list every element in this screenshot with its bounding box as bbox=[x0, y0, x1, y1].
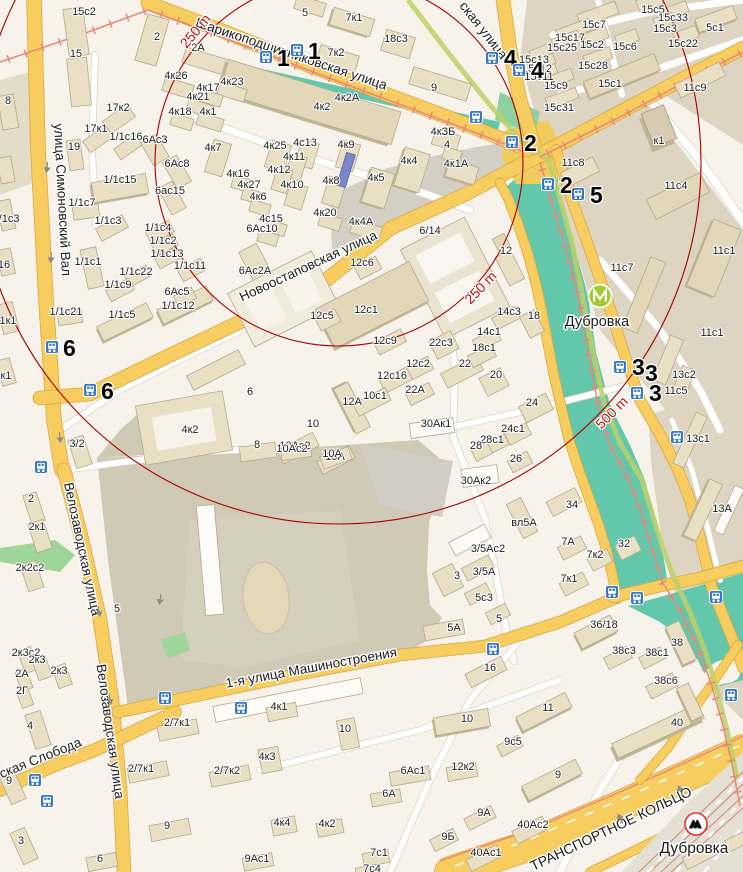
svg-text:12с6: 12с6 bbox=[350, 257, 374, 269]
svg-text:40Ас1: 40Ас1 bbox=[470, 847, 501, 859]
svg-text:36/18: 36/18 bbox=[590, 619, 618, 631]
svg-text:4к8: 4к8 bbox=[322, 175, 339, 187]
svg-text:4: 4 bbox=[531, 57, 544, 83]
svg-text:34: 34 bbox=[566, 499, 578, 511]
svg-text:38: 38 bbox=[671, 637, 683, 649]
svg-text:11с5: 11с5 bbox=[664, 385, 687, 397]
svg-text:12с9: 12с9 bbox=[373, 335, 397, 347]
svg-text:6: 6 bbox=[97, 853, 103, 865]
svg-text:17к1: 17к1 bbox=[84, 123, 107, 135]
svg-text:9Ас1: 9Ас1 bbox=[244, 853, 269, 865]
svg-text:10: 10 bbox=[339, 723, 351, 735]
svg-text:6А: 6А bbox=[382, 788, 396, 800]
svg-text:15с2: 15с2 bbox=[72, 6, 96, 18]
svg-text:1/1с22: 1/1с22 bbox=[119, 266, 152, 278]
svg-text:4к4: 4к4 bbox=[400, 155, 417, 167]
svg-text:7к1: 7к1 bbox=[345, 12, 362, 24]
svg-text:6Ас8: 6Ас8 bbox=[164, 158, 189, 170]
svg-text:11: 11 bbox=[542, 702, 553, 714]
svg-text:2: 2 bbox=[524, 130, 537, 156]
svg-text:5: 5 bbox=[302, 7, 308, 19]
svg-text:7с4: 7с4 bbox=[363, 863, 381, 872]
svg-text:4к2: 4к2 bbox=[181, 424, 198, 436]
svg-text:4к5: 4к5 bbox=[367, 172, 384, 184]
svg-text:30Ак2: 30Ак2 bbox=[461, 475, 492, 487]
svg-text:6: 6 bbox=[247, 386, 253, 398]
svg-text:15с31: 15с31 bbox=[544, 102, 574, 114]
svg-text:15с9: 15с9 bbox=[544, 80, 568, 92]
svg-text:22А: 22А bbox=[405, 384, 425, 396]
svg-text:11с1: 11с1 bbox=[712, 245, 735, 257]
svg-text:11с7: 11с7 bbox=[610, 262, 633, 274]
svg-text:4к21: 4к21 bbox=[186, 91, 209, 103]
svg-text:2: 2 bbox=[28, 493, 34, 505]
svg-text:6/14: 6/14 bbox=[419, 225, 440, 237]
svg-text:2А: 2А bbox=[15, 668, 29, 680]
svg-text:24: 24 bbox=[526, 397, 538, 409]
svg-text:1/1с16: 1/1с16 bbox=[109, 131, 142, 143]
svg-text:11с9: 11с9 bbox=[683, 82, 706, 94]
svg-text:4: 4 bbox=[444, 139, 450, 151]
svg-text:4к26: 4к26 bbox=[164, 70, 187, 82]
svg-text:2/7к2: 2/7к2 bbox=[214, 765, 240, 777]
svg-text:6Ас10: 6Ас10 bbox=[246, 223, 277, 235]
svg-text:6: 6 bbox=[101, 378, 114, 404]
svg-text:12с2: 12с2 bbox=[406, 358, 430, 370]
svg-text:5: 5 bbox=[590, 182, 603, 208]
svg-text:4к27: 4к27 bbox=[237, 179, 260, 191]
svg-text:15с22: 15с22 bbox=[668, 38, 698, 50]
svg-text:10: 10 bbox=[307, 418, 319, 430]
svg-text:9: 9 bbox=[6, 775, 12, 787]
svg-text:7к2: 7к2 bbox=[586, 549, 603, 561]
svg-text:4к10: 4к10 bbox=[280, 179, 303, 191]
svg-text:6Ас3: 6Ас3 bbox=[142, 134, 167, 146]
svg-text:2: 2 bbox=[560, 172, 573, 198]
svg-text:18с1: 18с1 bbox=[472, 342, 496, 354]
svg-text:вл5А: вл5А bbox=[511, 517, 537, 529]
svg-text:28с1: 28с1 bbox=[480, 434, 504, 446]
svg-text:18: 18 bbox=[528, 310, 540, 322]
svg-text:8: 8 bbox=[5, 95, 11, 107]
svg-text:4к7: 4к7 bbox=[204, 142, 221, 154]
svg-text:11с1: 11с1 bbox=[700, 327, 723, 339]
svg-text:к1: к1 bbox=[1, 370, 12, 382]
svg-text:10с1: 10с1 bbox=[363, 390, 387, 402]
svg-text:1/1с5: 1/1с5 bbox=[109, 309, 136, 321]
svg-text:2к2с2: 2к2с2 bbox=[16, 562, 45, 574]
svg-text:2: 2 bbox=[154, 31, 160, 43]
svg-text:5с3: 5с3 bbox=[475, 592, 493, 604]
svg-text:4к2: 4к2 bbox=[313, 101, 330, 113]
svg-text:4к4: 4к4 bbox=[273, 817, 290, 829]
svg-text:4к6: 4к6 bbox=[249, 191, 266, 203]
svg-text:10Ас2: 10Ас2 bbox=[276, 443, 307, 455]
svg-text:2к3: 2к3 bbox=[28, 654, 45, 666]
svg-text:1/1с4: 1/1с4 bbox=[145, 222, 172, 234]
svg-text:1/1с3: 1/1с3 bbox=[0, 213, 19, 225]
svg-text:16: 16 bbox=[0, 259, 10, 271]
svg-text:9Б: 9Б bbox=[441, 831, 454, 843]
svg-text:3/5А: 3/5А bbox=[473, 566, 496, 578]
svg-text:22: 22 bbox=[459, 358, 471, 370]
svg-text:9А: 9А bbox=[477, 807, 491, 819]
svg-text:4к11: 4к11 bbox=[283, 151, 305, 163]
svg-text:4к12: 4к12 bbox=[267, 164, 290, 176]
svg-text:1: 1 bbox=[277, 45, 290, 71]
svg-text:4кЗБ: 4кЗБ bbox=[431, 126, 456, 138]
svg-text:12к2: 12к2 bbox=[451, 761, 474, 773]
svg-text:12с16: 12с16 bbox=[377, 370, 407, 382]
svg-text:9: 9 bbox=[431, 82, 437, 94]
svg-text:2А: 2А bbox=[191, 42, 205, 54]
svg-text:4с13: 4с13 bbox=[293, 137, 317, 149]
svg-text:38с1: 38с1 bbox=[645, 647, 669, 659]
svg-text:13с2: 13с2 bbox=[672, 369, 696, 381]
svg-text:6Ас5: 6Ас5 bbox=[164, 286, 189, 298]
svg-text:15с28: 15с28 bbox=[578, 60, 608, 72]
svg-text:16: 16 bbox=[484, 662, 496, 674]
svg-text:12с5: 12с5 bbox=[310, 310, 334, 322]
svg-text:4к2: 4к2 bbox=[318, 818, 335, 830]
svg-text:18с3: 18с3 bbox=[384, 33, 408, 45]
svg-text:2Г: 2Г bbox=[16, 685, 28, 697]
svg-text:4: 4 bbox=[27, 720, 33, 732]
svg-text:15: 15 bbox=[70, 48, 82, 60]
svg-text:26: 26 bbox=[510, 453, 522, 465]
svg-text:17к2: 17к2 bbox=[106, 102, 129, 114]
svg-text:4к1А: 4к1А bbox=[444, 158, 469, 170]
svg-text:14с1: 14с1 bbox=[477, 326, 501, 338]
svg-text:6: 6 bbox=[63, 335, 76, 361]
svg-text:1/1с12: 1/1с12 bbox=[161, 300, 194, 312]
svg-text:40: 40 bbox=[671, 717, 683, 729]
svg-text:7к2: 7к2 bbox=[327, 47, 344, 59]
svg-text:22с3: 22с3 bbox=[429, 337, 453, 349]
svg-text:40Ас2: 40Ас2 bbox=[517, 819, 548, 831]
svg-text:11с4: 11с4 bbox=[664, 180, 687, 192]
svg-text:19: 19 bbox=[68, 141, 80, 153]
svg-text:2к1: 2к1 bbox=[28, 521, 45, 533]
svg-text:2к3: 2к3 bbox=[50, 665, 67, 677]
svg-text:15с6: 15с6 bbox=[613, 41, 637, 53]
svg-text:12А: 12А bbox=[342, 396, 362, 408]
svg-text:15с25: 15с25 bbox=[547, 42, 577, 54]
svg-text:9: 9 bbox=[164, 820, 170, 832]
svg-text:Дубровка: Дубровка bbox=[660, 840, 729, 857]
svg-text:11с8: 11с8 bbox=[561, 157, 584, 169]
svg-text:2/7к1: 2/7к1 bbox=[164, 717, 190, 729]
svg-text:20: 20 bbox=[490, 369, 502, 381]
svg-text:4к1: 4к1 bbox=[270, 701, 287, 713]
svg-text:1/1с1: 1/1с1 bbox=[75, 256, 102, 268]
svg-text:38с6: 38с6 bbox=[654, 675, 678, 687]
svg-text:1/1с21: 1/1с21 bbox=[49, 306, 82, 318]
svg-text:5А: 5А bbox=[447, 622, 461, 634]
svg-text:7с1: 7с1 bbox=[370, 847, 388, 859]
svg-text:7к1: 7к1 bbox=[560, 573, 577, 585]
svg-text:3/5Ас2: 3/5Ас2 bbox=[471, 543, 505, 555]
svg-text:4к1: 4к1 bbox=[199, 106, 216, 118]
svg-text:1/1с7: 1/1с7 bbox=[69, 197, 96, 209]
svg-text:3: 3 bbox=[454, 570, 460, 582]
svg-text:6Ас2А: 6Ас2А bbox=[239, 265, 272, 277]
svg-text:24с1: 24с1 bbox=[501, 423, 525, 435]
svg-text:15с2: 15с2 bbox=[580, 39, 604, 51]
svg-text:4к9: 4к9 bbox=[337, 139, 354, 151]
svg-text:6Ас1: 6Ас1 bbox=[400, 765, 425, 777]
svg-text:1/1с9: 1/1с9 bbox=[105, 279, 132, 291]
svg-text:14с3: 14с3 bbox=[497, 306, 521, 318]
svg-text:9: 9 bbox=[555, 769, 561, 781]
svg-text:8: 8 bbox=[254, 439, 260, 451]
svg-text:30Ак1: 30Ак1 bbox=[421, 418, 452, 430]
svg-text:6ас15: 6ас15 bbox=[155, 185, 185, 197]
svg-text:1/1с2: 1/1с2 bbox=[150, 235, 177, 247]
svg-text:1/1с11: 1/1с11 bbox=[174, 260, 206, 272]
svg-text:2/7к1: 2/7к1 bbox=[128, 763, 154, 775]
svg-text:9с5: 9с5 bbox=[504, 736, 522, 748]
svg-text:3/2: 3/2 bbox=[69, 438, 84, 450]
svg-text:7А: 7А bbox=[561, 536, 575, 548]
svg-text:3: 3 bbox=[632, 354, 645, 380]
svg-text:5с1: 5с1 bbox=[706, 22, 724, 34]
svg-text:4к18: 4к18 bbox=[168, 106, 191, 118]
svg-text:32: 32 bbox=[618, 538, 630, 550]
svg-text:10А: 10А bbox=[322, 448, 342, 460]
svg-text:3: 3 bbox=[18, 835, 24, 847]
svg-text:12: 12 bbox=[500, 245, 512, 257]
svg-text:15с1: 15с1 bbox=[598, 78, 622, 90]
svg-text:15с3: 15с3 bbox=[653, 23, 677, 35]
svg-text:Дубровка: Дубровка bbox=[565, 314, 630, 330]
svg-text:4к20: 4к20 bbox=[313, 207, 336, 219]
svg-text:13А: 13А bbox=[712, 503, 732, 515]
svg-text:38с3: 38с3 bbox=[612, 645, 636, 657]
svg-text:13с1: 13с1 bbox=[686, 433, 710, 445]
svg-text:15с7: 15с7 bbox=[582, 19, 606, 31]
svg-text:1: 1 bbox=[308, 38, 321, 64]
svg-text:4к4А: 4к4А bbox=[349, 216, 374, 228]
svg-text:5: 5 bbox=[114, 603, 120, 615]
svg-text:1/1с3: 1/1с3 bbox=[95, 215, 122, 227]
svg-text:4к2А: 4к2А bbox=[335, 92, 360, 104]
svg-text:1/1с13: 1/1с13 bbox=[150, 248, 183, 260]
svg-text:12с1: 12с1 bbox=[354, 304, 378, 316]
svg-text:1/1с15: 1/1с15 bbox=[103, 174, 136, 186]
svg-text:5: 5 bbox=[496, 613, 502, 625]
svg-text:к1: к1 bbox=[654, 135, 665, 147]
svg-text:3: 3 bbox=[649, 380, 662, 406]
svg-text:4к23: 4к23 bbox=[220, 76, 243, 88]
svg-text:4к3: 4к3 bbox=[258, 751, 275, 763]
svg-text:1к1: 1к1 bbox=[0, 315, 17, 327]
svg-text:28: 28 bbox=[470, 440, 482, 452]
svg-text:10: 10 bbox=[461, 713, 473, 725]
